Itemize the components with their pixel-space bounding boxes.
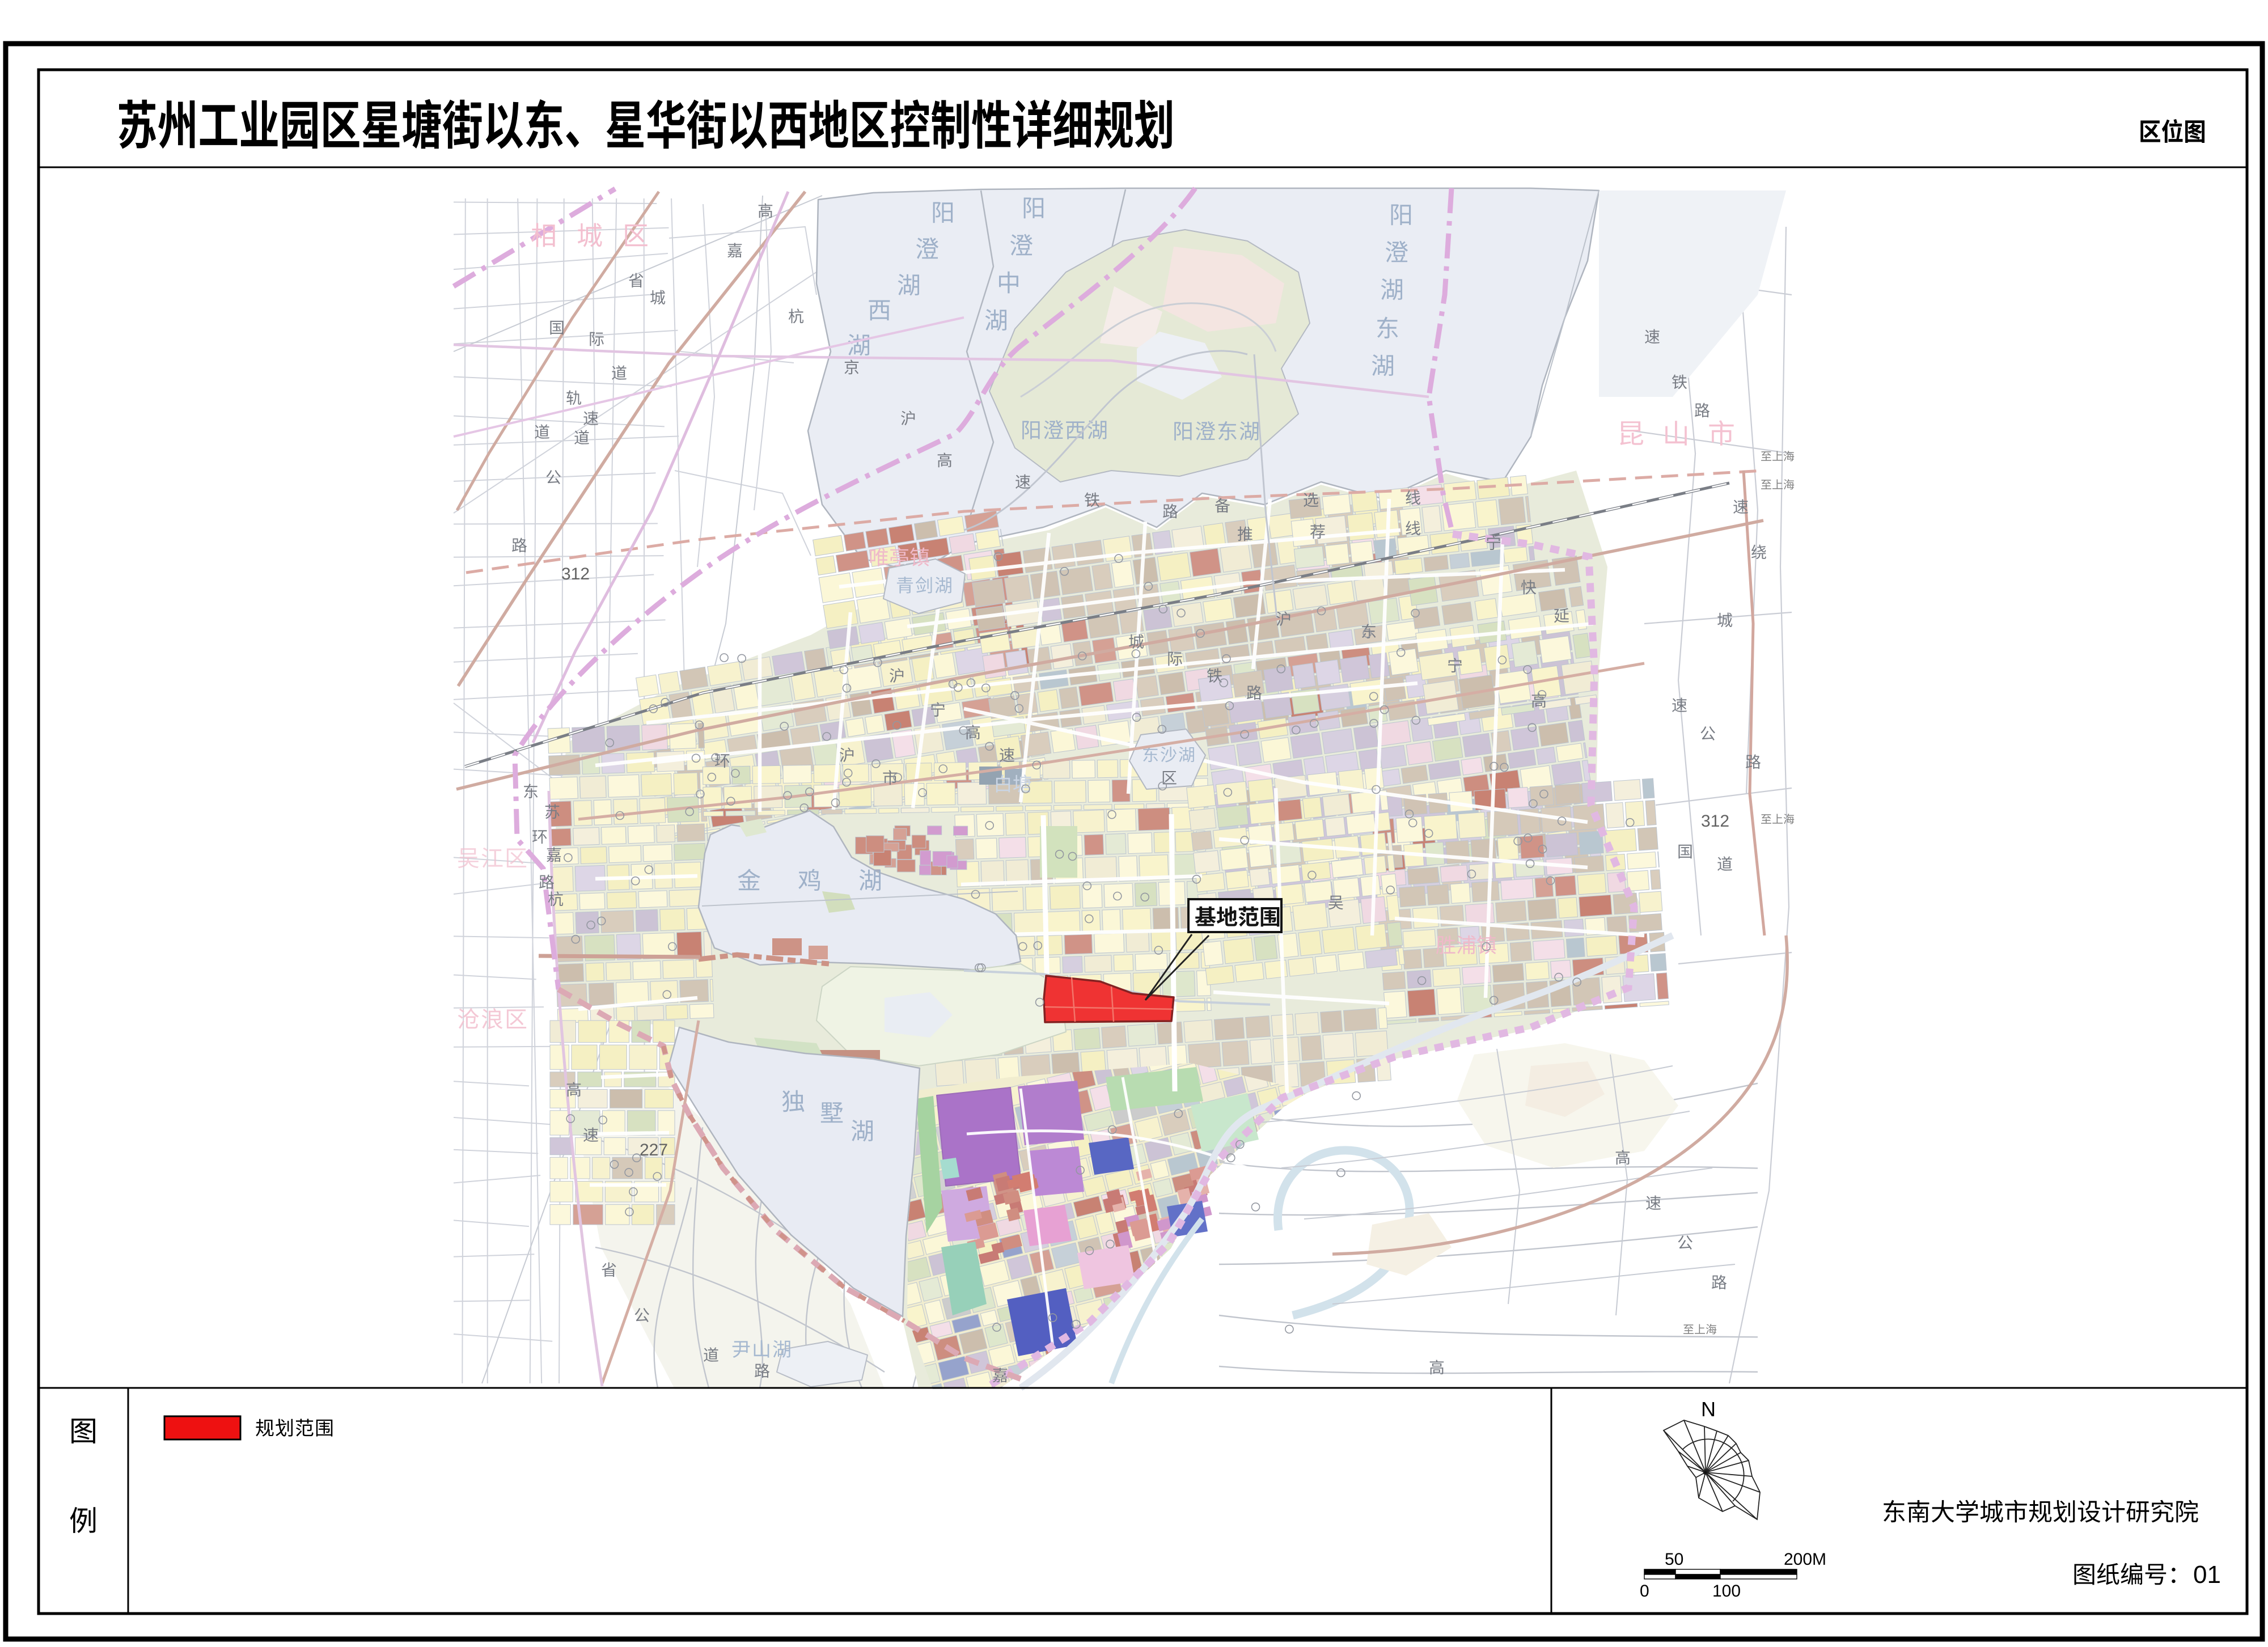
svg-text:01: 01	[2193, 1561, 2221, 1589]
svg-text:100: 100	[1712, 1582, 1741, 1601]
svg-text:N: N	[1701, 1398, 1716, 1421]
svg-text:200M: 200M	[1784, 1550, 1826, 1569]
svg-text:0: 0	[1640, 1582, 1649, 1601]
svg-text:50: 50	[1665, 1550, 1683, 1569]
